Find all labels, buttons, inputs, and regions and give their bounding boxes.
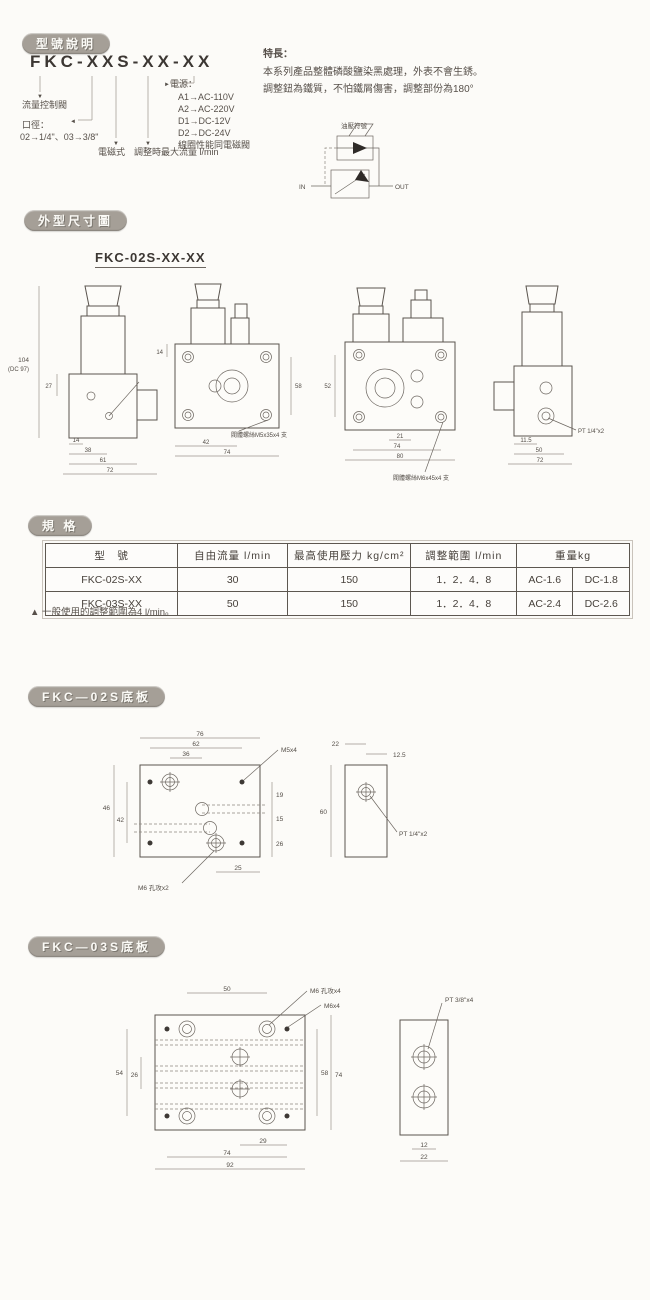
svg-text:76: 76 xyxy=(196,731,204,738)
svg-text:50: 50 xyxy=(536,448,543,454)
cell-model: FKC-02S-XX xyxy=(46,568,178,592)
symbol-in-label: IN xyxy=(299,184,306,191)
svg-text:74: 74 xyxy=(224,450,231,456)
svg-text:M5x4: M5x4 xyxy=(281,747,297,754)
svg-text:72: 72 xyxy=(107,468,114,474)
svg-text:22: 22 xyxy=(332,741,340,748)
svg-text:42: 42 xyxy=(117,817,125,824)
spec-header-row: 型 號 自由流量 l/min 最高使用壓力 kg/cm² 調整範圍 l/min … xyxy=(46,544,630,568)
cell-flow: 50 xyxy=(178,592,288,616)
cell-range: 1．2．4．8 xyxy=(411,592,517,616)
cell-range: 1．2．4．8 xyxy=(411,568,517,592)
outline-view-side: 104 (DC 97) 27 14 38 61 72 xyxy=(8,286,157,474)
solenoid-type-label: 電磁式 xyxy=(98,147,125,158)
outline-view-front-solenoid: 52 21 74 80 閥體螺絲M6x45x4 支 xyxy=(324,288,455,482)
outline-subtitle: FKC-02S-XX-XX xyxy=(95,250,206,268)
model-code: FKC-XXS-XX-XX xyxy=(30,52,213,72)
svg-text:閥體螺絲M5x35x4 支: 閥體螺絲M5x35x4 支 xyxy=(231,431,287,439)
power-label: 電源： xyxy=(170,79,197,90)
features-line: 本系列產品整體磷酸鹽染黑處理，外表不會生銹。 xyxy=(263,64,638,81)
svg-text:11.5: 11.5 xyxy=(520,438,532,444)
svg-text:26: 26 xyxy=(131,1072,139,1079)
svg-text:74: 74 xyxy=(223,1150,231,1157)
table-row: FKC-02S-XX 30 150 1．2．4．8 AC-1.6 DC-1.8 xyxy=(46,568,630,592)
power-option: A2→AC-220V xyxy=(178,104,250,115)
svg-text:62: 62 xyxy=(192,741,200,748)
outline-drawing: 104 (DC 97) 27 14 38 61 72 14 58 xyxy=(0,278,650,498)
power-option: 線圈性能同電磁閥 xyxy=(178,140,250,151)
svg-text:27: 27 xyxy=(45,384,52,390)
plate02-side-view: 22 12.5 60 PT 1/4"x2 xyxy=(320,741,428,857)
datasheet-page: { "badges":{ "model":"型號說明", "outline":"… xyxy=(0,0,650,1300)
svg-text:M6 孔攻x4: M6 孔攻x4 xyxy=(310,986,341,995)
features-title: 特長： xyxy=(263,46,638,63)
features-text: 特長： 本系列產品整體磷酸鹽染黑處理，外表不會生銹。 調整鈕為鐵質，不怕鐵屑傷害… xyxy=(263,46,638,98)
svg-text:(DC 97): (DC 97) xyxy=(8,367,29,373)
svg-text:58: 58 xyxy=(295,384,302,390)
spec-footnote: ▲ 一般使用的調整範圍為4 l/min。 xyxy=(30,604,175,618)
svg-text:72: 72 xyxy=(537,458,544,464)
power-option: D2→DC-24V xyxy=(178,128,250,139)
svg-text:22: 22 xyxy=(420,1154,428,1161)
cell-weight-ac: AC-1.6 xyxy=(517,568,573,592)
svg-text:25: 25 xyxy=(234,865,242,872)
svg-text:92: 92 xyxy=(226,1162,234,1169)
cell-weight-dc: DC-2.6 xyxy=(573,592,630,616)
cell-weight-ac: AC-2.4 xyxy=(517,592,573,616)
svg-text:19: 19 xyxy=(276,792,284,799)
svg-text:15: 15 xyxy=(276,816,284,823)
svg-text:PT 3/8"x4: PT 3/8"x4 xyxy=(445,997,474,1004)
svg-text:38: 38 xyxy=(85,448,92,454)
svg-text:52: 52 xyxy=(324,384,331,390)
svg-text:58: 58 xyxy=(321,1070,329,1077)
svg-text:50: 50 xyxy=(223,986,231,993)
bore-label: 口徑： xyxy=(22,120,49,131)
section-badge-spec: 規 格 xyxy=(28,515,92,536)
col-adjust-range: 調整範圍 l/min xyxy=(411,544,517,568)
svg-text:14: 14 xyxy=(73,438,80,444)
svg-text:36: 36 xyxy=(182,751,190,758)
svg-text:80: 80 xyxy=(397,454,404,460)
svg-text:12: 12 xyxy=(420,1142,428,1149)
section-badge-plate02: FKC—02S底板 xyxy=(28,686,165,707)
plate03-side-view: PT 3/8"x4 12 22 xyxy=(400,997,474,1161)
svg-text:54: 54 xyxy=(116,1070,124,1077)
svg-text:PT 1/4"x2: PT 1/4"x2 xyxy=(399,831,428,838)
left-arrow-icon: ◄ xyxy=(70,119,76,125)
col-free-flow: 自由流量 l/min xyxy=(178,544,288,568)
power-option: A1→AC-110V xyxy=(178,92,250,103)
svg-text:閥體螺絲M6x45x4 支: 閥體螺絲M6x45x4 支 xyxy=(393,474,449,482)
svg-text:21: 21 xyxy=(397,434,404,440)
power-option: D1→DC-12V xyxy=(178,116,250,127)
outline-view-front: 14 58 閥體螺絲M5x35x4 支 42 74 xyxy=(156,284,302,456)
svg-text:60: 60 xyxy=(320,809,328,816)
hydraulic-symbol-drawing: 油壓符號 IN OUT xyxy=(295,118,425,213)
plate02-front-view: 76 62 36 46 42 19 15 26 25 M5x4 M6 孔攻x2 xyxy=(103,731,298,892)
svg-text:14: 14 xyxy=(156,350,163,356)
svg-text:12.5: 12.5 xyxy=(393,752,406,759)
svg-text:PT 1/4"x2: PT 1/4"x2 xyxy=(578,429,605,435)
cell-flow: 30 xyxy=(178,568,288,592)
plate03-front-view: 50 M6 孔攻x4 M6x4 54 26 58 74 29 74 92 xyxy=(116,986,343,1169)
svg-text:42: 42 xyxy=(203,440,210,446)
bore-options: 02→1/4"、03→3/8" xyxy=(20,132,98,143)
outline-view-side-right: PT 1/4"x2 11.5 50 72 xyxy=(494,286,605,464)
svg-text:M6x4: M6x4 xyxy=(324,1003,340,1010)
cell-weight-dc: DC-1.8 xyxy=(573,568,630,592)
section-badge-outline: 外型尺寸圖 xyxy=(24,210,127,231)
svg-text:M6 孔攻x2: M6 孔攻x2 xyxy=(138,883,169,892)
svg-text:74: 74 xyxy=(335,1072,343,1079)
col-model: 型 號 xyxy=(46,544,178,568)
svg-text:29: 29 xyxy=(259,1138,267,1145)
col-weight: 重量kg xyxy=(517,544,630,568)
flow-valve-label: 流量控制閥 xyxy=(22,100,67,111)
svg-text:46: 46 xyxy=(103,805,111,812)
svg-text:26: 26 xyxy=(276,841,284,848)
cell-pressure: 150 xyxy=(288,592,411,616)
svg-text:74: 74 xyxy=(394,444,401,450)
plate02-drawing: 76 62 36 46 42 19 15 26 25 M5x4 M6 孔攻x2 … xyxy=(95,722,565,902)
power-options: A1→AC-110V A2→AC-220V D1→DC-12V D2→DC-24… xyxy=(178,92,250,152)
section-badge-plate03: FKC—03S底板 xyxy=(28,936,165,957)
plate03-drawing: 50 M6 孔攻x4 M6x4 54 26 58 74 29 74 92 PT … xyxy=(95,975,595,1190)
svg-text:61: 61 xyxy=(100,458,107,464)
svg-text:104: 104 xyxy=(18,357,29,364)
col-max-pressure: 最高使用壓力 kg/cm² xyxy=(288,544,411,568)
section-badge-model: 型號說明 xyxy=(22,33,110,54)
cell-pressure: 150 xyxy=(288,568,411,592)
features-line: 調整鈕為鐵質，不怕鐵屑傷害，調整部份為180° xyxy=(263,81,638,98)
symbol-out-label: OUT xyxy=(395,184,409,191)
